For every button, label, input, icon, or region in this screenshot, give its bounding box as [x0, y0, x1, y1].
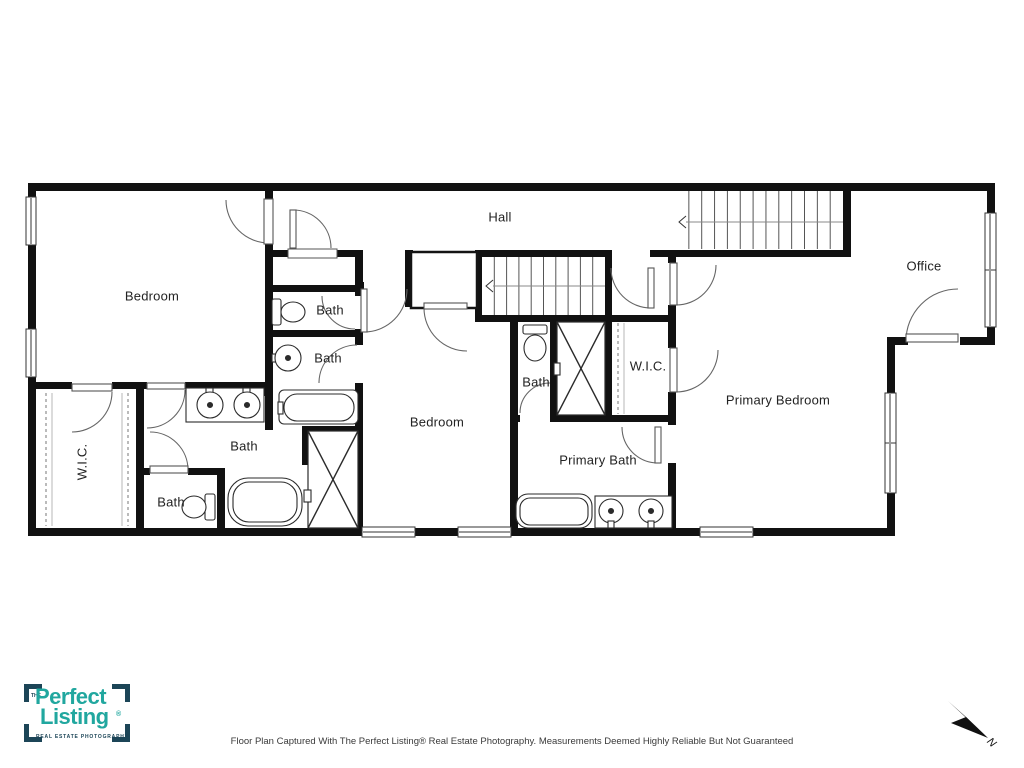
- door-arc: [293, 210, 331, 248]
- toilet-icon: [272, 299, 281, 325]
- room-label-wic-left: W.I.C.: [75, 444, 90, 481]
- door-leaf: [648, 268, 654, 308]
- floor-plan: N Hall Office Bedroom Bedroom Primary Be…: [0, 0, 1024, 768]
- wall: [188, 468, 225, 475]
- door-leaf: [72, 384, 112, 391]
- room-label-bath-5: Bath: [522, 375, 550, 390]
- room-label-office: Office: [907, 259, 942, 274]
- wall: [960, 337, 995, 345]
- toilet-icon: [523, 325, 547, 334]
- wall: [510, 322, 518, 528]
- room-label-bedroom-upper: Bedroom: [125, 289, 179, 304]
- door-arc: [364, 289, 407, 332]
- door-leaf: [361, 289, 367, 332]
- wall: [217, 475, 225, 528]
- sink-drain: [609, 509, 614, 514]
- door-arc: [611, 268, 651, 308]
- sink-faucet-icon: [648, 521, 654, 528]
- wall: [28, 183, 995, 191]
- shower-valve-icon: [554, 363, 560, 375]
- compass-north-arrow: N: [948, 701, 998, 750]
- door-arc: [676, 350, 718, 392]
- compass-north-label: N: [984, 736, 998, 750]
- wall: [143, 468, 150, 475]
- logo-bracket-icon: [112, 684, 130, 702]
- door-leaf: [670, 348, 677, 392]
- door-arc: [676, 265, 716, 305]
- toilet-icon: [182, 496, 206, 518]
- wall: [843, 191, 851, 257]
- door-arc: [906, 289, 958, 341]
- wall: [265, 330, 363, 337]
- door-arc: [72, 392, 112, 432]
- wall: [36, 382, 72, 389]
- room-label-primary-bedroom: Primary Bedroom: [726, 393, 830, 408]
- door-leaf: [147, 383, 185, 389]
- sink-drain: [649, 509, 654, 514]
- sink-faucet-icon: [608, 521, 614, 528]
- wall: [265, 250, 288, 257]
- door-arc: [424, 308, 467, 351]
- wall: [475, 315, 675, 322]
- wall: [550, 415, 675, 422]
- toilet-icon: [524, 335, 546, 361]
- room-label-bath-4: Bath: [157, 495, 185, 510]
- logo-word-listing: Listing: [40, 706, 109, 728]
- room-label-primary-bath: Primary Bath: [559, 453, 637, 468]
- logo-tagline: REAL ESTATE PHOTOGRAPHY: [36, 734, 129, 740]
- wall: [668, 305, 676, 348]
- door-leaf: [670, 263, 677, 305]
- cased-opening: [288, 249, 337, 258]
- bathtub-inner: [520, 498, 588, 525]
- wall: [337, 250, 363, 257]
- door-leaf: [150, 466, 188, 473]
- staircase-middle: [482, 257, 605, 315]
- door-arc: [226, 200, 269, 243]
- room-label-bedroom-middle: Bedroom: [410, 415, 464, 430]
- staircase-upper-right: [676, 191, 843, 249]
- room-label-bath-2: Bath: [314, 351, 342, 366]
- stair-landing-closet: [411, 252, 477, 308]
- wall: [265, 285, 363, 292]
- door-leaf: [424, 303, 467, 309]
- room-label-hall: Hall: [488, 210, 511, 225]
- wall: [475, 250, 612, 257]
- wall: [605, 250, 612, 422]
- room-label-wic-middle: W.I.C.: [630, 359, 667, 374]
- sink-drain: [245, 403, 250, 408]
- tub-faucet-icon: [278, 402, 283, 414]
- toilet-icon: [281, 302, 305, 322]
- sink-drain: [208, 403, 213, 408]
- wall: [510, 415, 520, 422]
- floor-plan-geometry: N: [0, 0, 1024, 768]
- room-label-bath-1: Bath: [316, 303, 344, 318]
- room-label-bath-3: Bath: [230, 439, 258, 454]
- door-leaf: [655, 427, 661, 463]
- door-leaf: [290, 210, 296, 248]
- fixtures: [182, 299, 672, 528]
- perfect-listing-logo: THE Perfect Listing ® REAL ESTATE PHOTOG…: [24, 684, 130, 742]
- footer-caption: Floor Plan Captured With The Perfect Lis…: [231, 736, 794, 747]
- door-arc: [147, 390, 185, 428]
- shower-valve-icon: [304, 490, 311, 502]
- wall: [112, 382, 147, 389]
- wall: [650, 250, 851, 257]
- bathtub-inner: [284, 394, 354, 421]
- sink-drain: [286, 356, 291, 361]
- door-leaf: [264, 199, 273, 244]
- wall: [136, 382, 144, 528]
- door-arc: [150, 432, 188, 470]
- bathtub-inner: [233, 482, 297, 522]
- logo-registered-mark: ®: [116, 711, 121, 718]
- door-leaf: [906, 334, 958, 342]
